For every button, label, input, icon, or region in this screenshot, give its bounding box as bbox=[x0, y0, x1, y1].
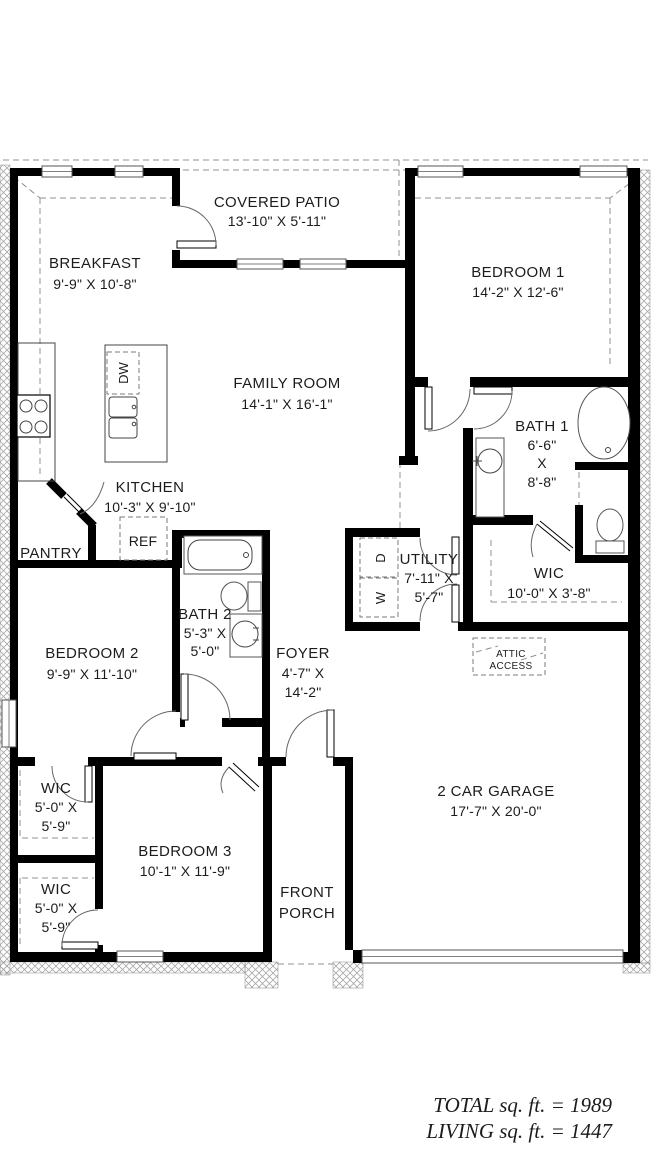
breakfast-window bbox=[42, 166, 72, 177]
floor-plan-canvas: COVERED PATIO 13'-10" X 5'-11" BREAKFAST… bbox=[0, 0, 651, 1150]
room-dims-wic-bed2-h: 5'-9" bbox=[42, 818, 71, 834]
kitchen-island bbox=[105, 345, 167, 462]
room-dims-bath1-h: 8'-8" bbox=[528, 474, 557, 490]
room-label-family-room: FAMILY ROOM bbox=[233, 375, 340, 392]
room-dims-bedroom1: 14'-2" X 12'-6" bbox=[472, 284, 563, 300]
room-dims-bedroom3: 10'-1" X 11'-9" bbox=[140, 863, 230, 879]
front-door bbox=[286, 710, 334, 757]
room-label-bath2: BATH 2 bbox=[178, 606, 232, 623]
label-attic-access-2: ACCESS bbox=[490, 661, 533, 672]
room-dims-garage: 17'-7" X 20'-0" bbox=[450, 803, 541, 819]
room-dims-family-room: 14'-1" X 16'-1" bbox=[241, 396, 332, 412]
wic-divider-wall bbox=[10, 855, 103, 863]
room-label-front-porch-1: FRONT bbox=[280, 884, 334, 901]
bath2-sink bbox=[230, 614, 262, 657]
room-dims-foyer-h: 14'-2" bbox=[285, 684, 322, 700]
room-label-wic-bed3: WIC bbox=[41, 881, 71, 898]
porch-left-wall bbox=[263, 757, 272, 962]
room-label-kitchen: KITCHEN bbox=[116, 479, 185, 496]
bath1-sink bbox=[472, 438, 504, 517]
room-dims-breakfast: 9'-9" X 10'-8" bbox=[53, 276, 136, 292]
bedroom1-window-2 bbox=[580, 166, 627, 177]
room-dims-bedroom2: 9'-9" X 11'-10" bbox=[47, 666, 137, 682]
bath2-tub bbox=[184, 536, 262, 574]
label-dishwasher: DW bbox=[116, 361, 131, 383]
room-dims-utility-h: 5'-7" bbox=[415, 589, 444, 605]
room-label-breakfast: BREAKFAST bbox=[49, 255, 141, 272]
room-dims-wic-master: 10'-0" X 3'-8" bbox=[507, 585, 590, 601]
room-dims-wic-bed3-h: 5'-9" bbox=[42, 919, 71, 935]
room-label-bedroom1: BEDROOM 1 bbox=[471, 264, 565, 281]
bedroom2-door bbox=[131, 711, 176, 760]
room-label-utility: UTILITY bbox=[400, 551, 459, 568]
label-attic-access-1: ATTIC bbox=[496, 649, 526, 660]
room-label-bedroom3: BEDROOM 3 bbox=[138, 843, 232, 860]
room-dims-wic-bed2-w: 5'-0" X bbox=[35, 799, 78, 815]
pantry-diagonal-wall bbox=[49, 481, 64, 496]
label-dryer: D bbox=[373, 553, 388, 562]
total-sqft-text: TOTAL sq. ft. = 1989 bbox=[433, 1093, 612, 1117]
label-washer: W bbox=[373, 591, 388, 604]
room-label-bath1: BATH 1 bbox=[515, 418, 569, 435]
pantry-door bbox=[64, 482, 104, 514]
room-label-bedroom2: BEDROOM 2 bbox=[45, 645, 139, 662]
garage-top-wall bbox=[458, 622, 628, 631]
bedroom2-window bbox=[2, 700, 16, 747]
room-dims-kitchen: 10'-3" X 9'-10" bbox=[104, 499, 195, 515]
bath1-tub bbox=[578, 387, 630, 459]
bedroom1-window bbox=[418, 166, 463, 177]
room-dims-foyer-w: 4'-7" X bbox=[282, 665, 325, 681]
patio-door bbox=[177, 206, 216, 248]
label-refrigerator: REF bbox=[129, 533, 158, 549]
patio-bottom-wall bbox=[172, 260, 408, 268]
room-dims-bath2-h: 5'-0" bbox=[191, 643, 220, 659]
room-label-wic-master: WIC bbox=[534, 565, 564, 582]
bath1-door bbox=[474, 387, 512, 429]
garage-door bbox=[362, 950, 623, 963]
bath2-door bbox=[181, 674, 230, 720]
stove bbox=[17, 395, 50, 437]
floor-plan-page: COVERED PATIO 13'-10" X 5'-11" BREAKFAST… bbox=[0, 0, 651, 1150]
room-label-garage: 2 CAR GARAGE bbox=[437, 783, 554, 800]
room-dims-utility-w: 7'-11" X bbox=[404, 570, 454, 586]
room-dims-bath2-w: 5'-3" X bbox=[184, 625, 227, 641]
bedroom1-left-wall bbox=[405, 176, 415, 458]
room-dims-covered-patio: 13'-10" X 5'-11" bbox=[228, 213, 326, 229]
bedroom1-door bbox=[425, 387, 470, 431]
bedroom3-angled-door bbox=[221, 763, 259, 793]
doors bbox=[52, 206, 573, 949]
bedroom3-window bbox=[117, 951, 163, 962]
room-label-wic-bed2: WIC bbox=[41, 780, 71, 797]
breakfast-window-2 bbox=[115, 166, 143, 177]
garage-front-wall bbox=[345, 766, 353, 950]
kitchen-sink bbox=[109, 397, 137, 438]
room-dims-bath1-w: 6'-6" bbox=[528, 437, 557, 453]
porch-column-right bbox=[333, 962, 363, 988]
room-label-foyer: FOYER bbox=[276, 645, 330, 662]
bedroom1-bottom-wall bbox=[470, 377, 632, 387]
room-label-covered-patio: COVERED PATIO bbox=[214, 194, 340, 211]
bath1-toilet bbox=[596, 509, 624, 553]
utility-left-wall bbox=[345, 528, 353, 631]
patio-window-2 bbox=[300, 259, 346, 269]
room-label-front-porch-2: PORCH bbox=[279, 905, 335, 922]
porch-column-left bbox=[245, 962, 278, 988]
totals-block: TOTAL sq. ft. = 1989 LIVING sq. ft. = 14… bbox=[425, 1093, 613, 1143]
patio-left-wall bbox=[172, 168, 180, 206]
room-label-pantry: PANTRY bbox=[20, 545, 82, 562]
wic-master-angled-door bbox=[531, 521, 573, 557]
room-dims-bath1-x: X bbox=[537, 455, 547, 471]
room-dims-wic-bed3-w: 5'-0" X bbox=[35, 900, 78, 916]
living-sqft-text: LIVING sq. ft. = 1447 bbox=[425, 1119, 613, 1143]
patio-window bbox=[237, 259, 283, 269]
bedroom2-right-wall bbox=[172, 568, 180, 712]
